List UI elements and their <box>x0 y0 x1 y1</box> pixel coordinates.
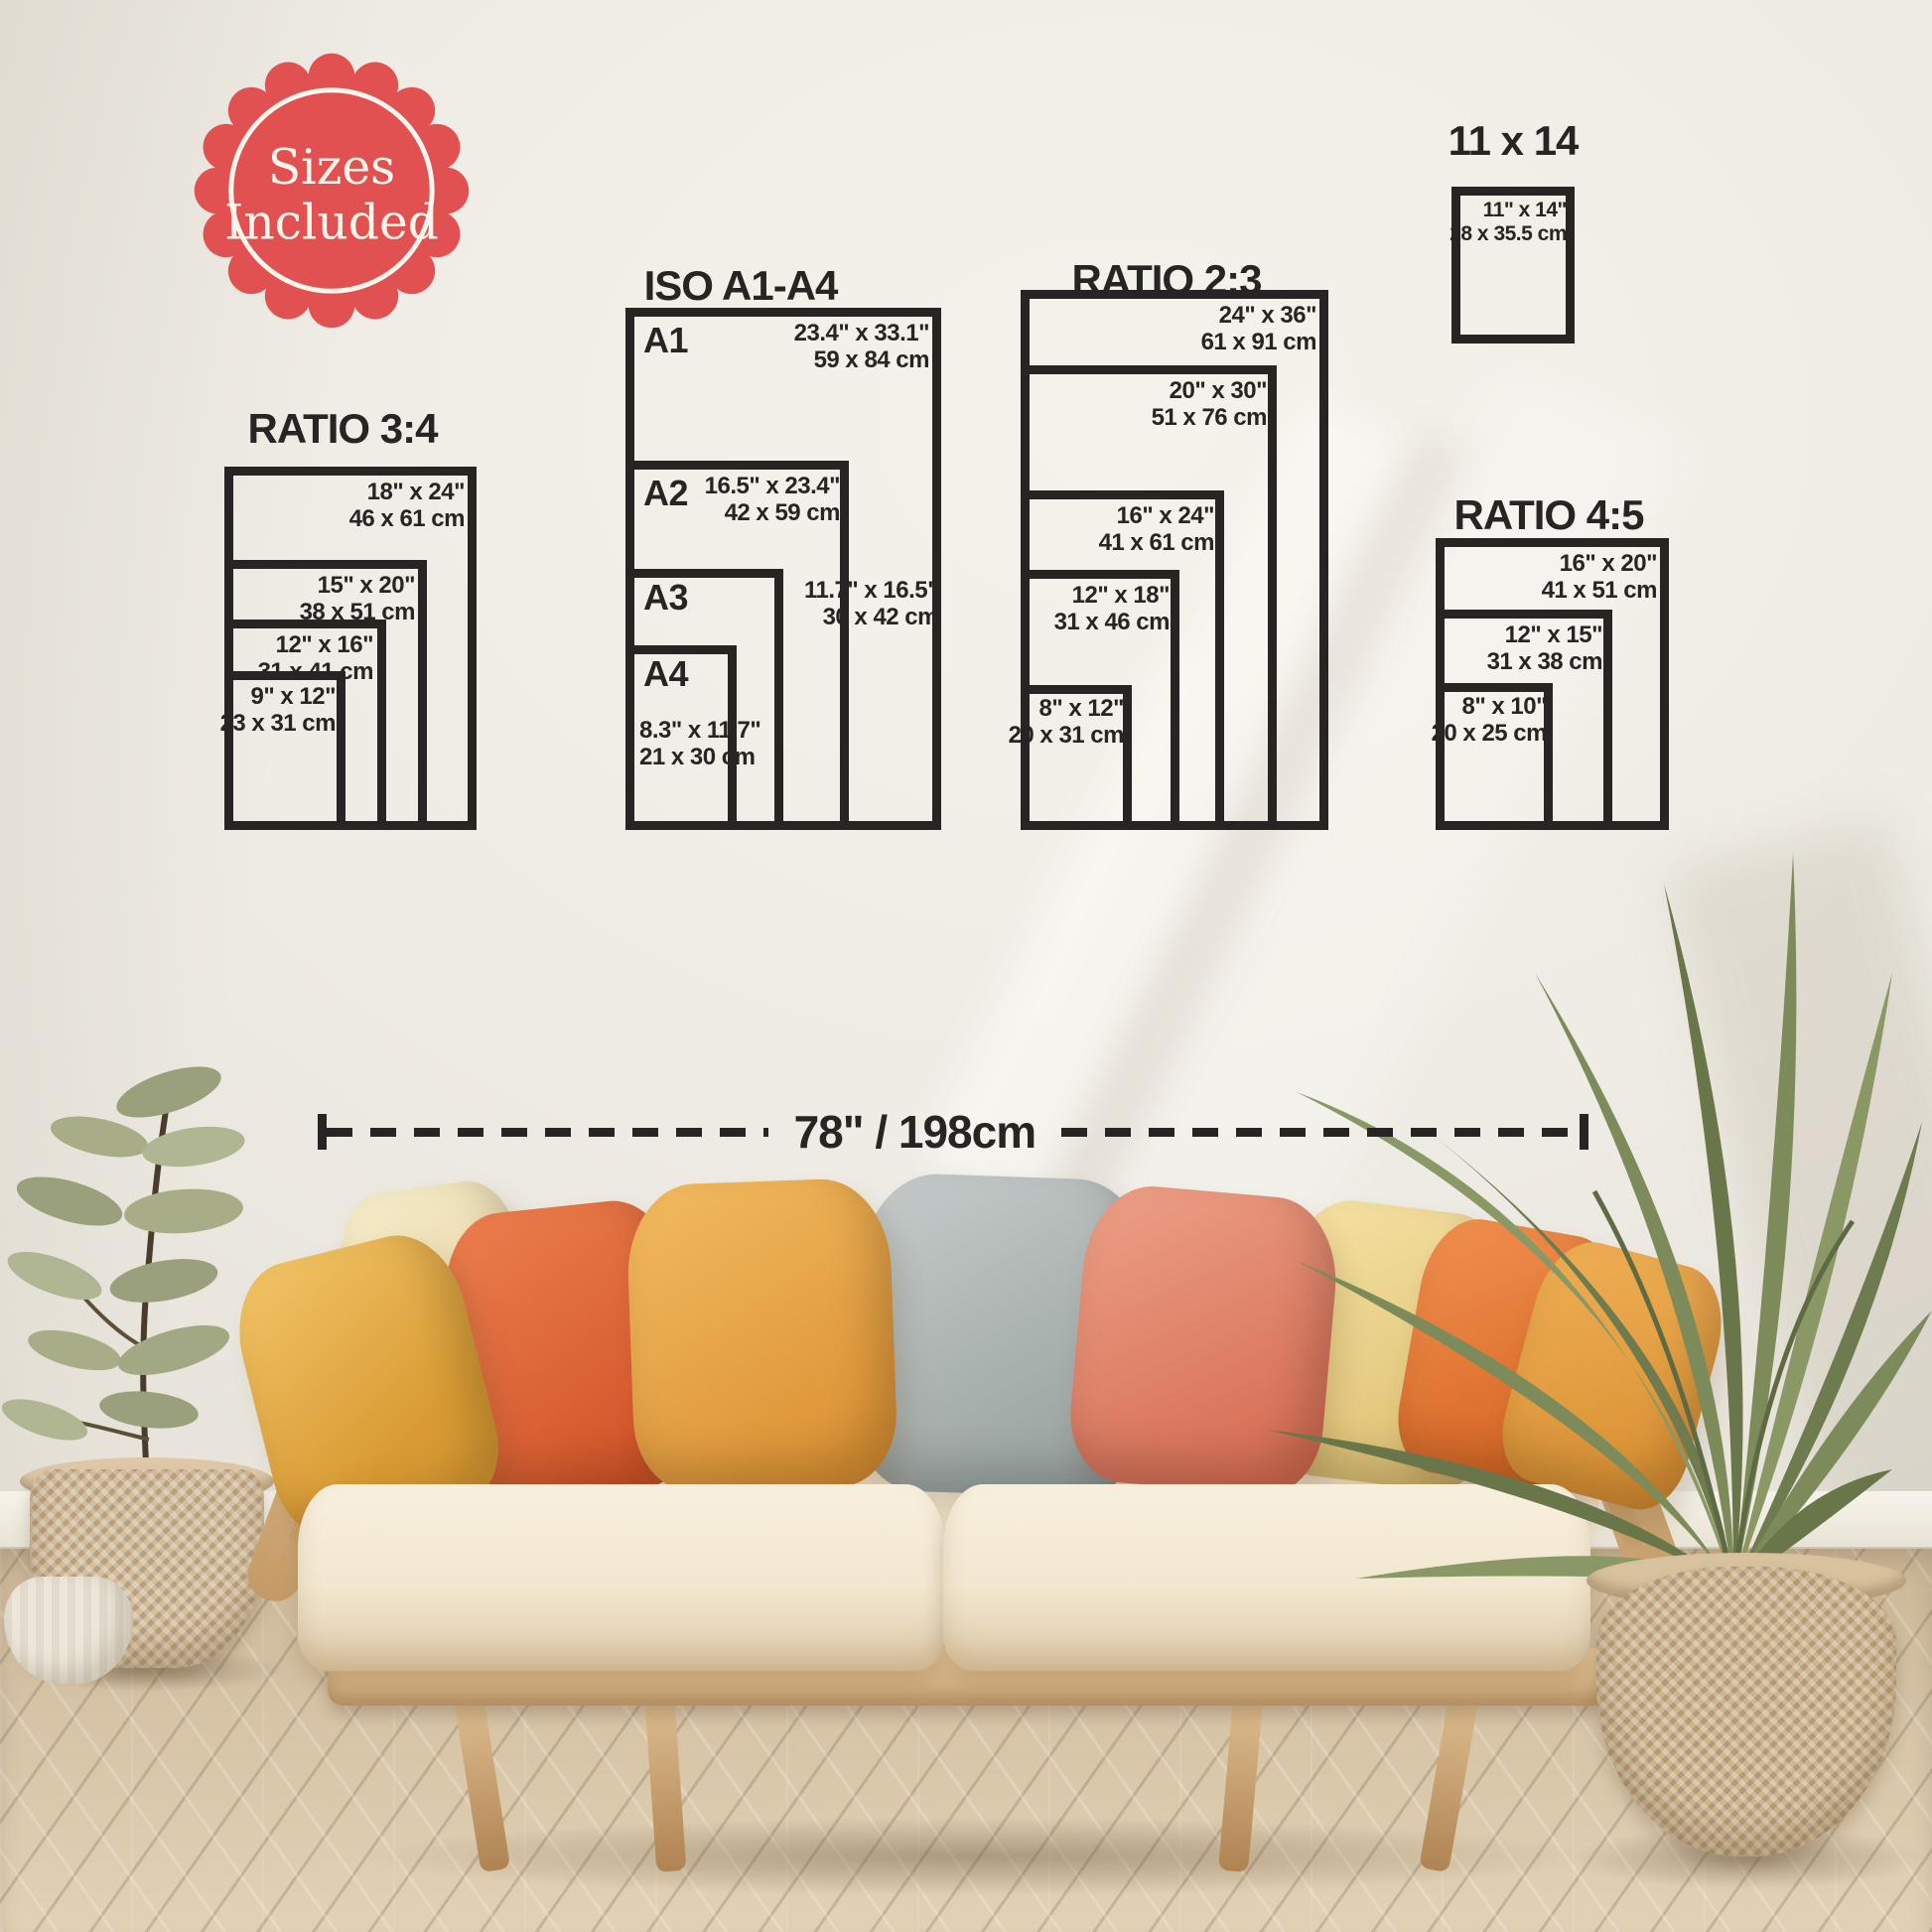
cm-text: 31 x 46 cm <box>1054 609 1170 635</box>
inch-text: 16.5" x 23.4" <box>705 473 840 499</box>
inch-text: 23.4" x 33.1" <box>794 320 929 346</box>
paper-label-a1: A1 <box>643 320 688 361</box>
size-chart-mockup: RATIO 3:4 18" x 24"46 x 61 cm 15" x 20"3… <box>0 0 1932 1932</box>
inch-text: 16" x 24" <box>1099 502 1214 529</box>
cm-text: 20 x 25 cm <box>1432 720 1547 747</box>
size-label-11x14: 11" x 14"28 x 35.5 cm <box>1449 199 1567 246</box>
inch-text: 8.3" x 11.7" <box>639 717 760 744</box>
cm-text: 38 x 51 cm <box>300 599 415 625</box>
badge-text-line2: Included <box>224 196 439 251</box>
cm-text: 42 x 59 cm <box>705 499 840 526</box>
size-label-12x15: 12" x 15"31 x 38 cm <box>1487 621 1602 676</box>
paper-label-a2: A2 <box>643 473 688 514</box>
cm-text: 20 x 31 cm <box>1009 722 1124 749</box>
measure-label: 78" / 198cm <box>794 1105 1036 1159</box>
measure-dash-left <box>327 1128 768 1137</box>
cm-text: 41 x 61 cm <box>1099 529 1214 556</box>
inch-text: 18" x 24" <box>349 479 465 505</box>
inch-text: 11" x 14" <box>1449 199 1567 222</box>
sizes-included-badge: Sizes Included <box>187 46 477 336</box>
paper-label-a3: A3 <box>643 577 688 619</box>
size-label-12x16: 12" x 16"31 x 41 cm <box>258 631 373 686</box>
inch-text: 11.7" x 16.5" <box>804 577 938 604</box>
cm-text: 31 x 41 cm <box>258 658 373 685</box>
measure-dash-right <box>1061 1128 1580 1137</box>
inch-text: 24" x 36" <box>1201 302 1316 329</box>
size-label-18x24: 18" x 24"46 x 61 cm <box>349 479 465 533</box>
inch-text: 9" x 12" <box>220 683 336 710</box>
measure-tick-right <box>1580 1114 1588 1150</box>
cm-text: 46 x 61 cm <box>349 505 465 532</box>
size-label-a4: 8.3" x 11.7"21 x 30 cm <box>639 717 760 771</box>
size-label-a1: 23.4" x 33.1"59 x 84 cm <box>794 320 929 374</box>
size-label-a3: 11.7" x 16.5"30 x 42 cm <box>804 577 938 631</box>
size-label-a2: 16.5" x 23.4"42 x 59 cm <box>705 473 840 527</box>
size-label-15x20: 15" x 20"38 x 51 cm <box>300 572 415 626</box>
size-label-8x12: 8" x 12"20 x 31 cm <box>1009 695 1124 750</box>
cm-text: 31 x 38 cm <box>1487 648 1602 675</box>
inch-text: 12" x 18" <box>1054 582 1170 609</box>
group-title-11x14: 11 x 14 <box>1314 117 1712 165</box>
cm-text: 30 x 42 cm <box>804 604 938 630</box>
cm-text: 28 x 35.5 cm <box>1449 222 1567 246</box>
paper-label-a4: A4 <box>643 653 688 695</box>
size-label-9x12: 9" x 12"23 x 31 cm <box>220 683 336 738</box>
measure-tick-left <box>318 1114 327 1150</box>
size-label-16x24: 16" x 24"41 x 61 cm <box>1099 502 1214 557</box>
cm-text: 41 x 51 cm <box>1542 577 1657 604</box>
inch-text: 12" x 16" <box>258 631 373 658</box>
size-label-8x10: 8" x 10"20 x 25 cm <box>1432 693 1547 748</box>
inch-text: 8" x 12" <box>1009 695 1124 722</box>
width-measurement: 78" / 198cm <box>318 1100 1588 1164</box>
inch-text: 20" x 30" <box>1152 377 1267 404</box>
cm-text: 61 x 91 cm <box>1201 329 1316 355</box>
badge-text-line1: Sizes <box>268 140 395 196</box>
inch-text: 16" x 20" <box>1542 550 1657 577</box>
group-title-ratio-3-4: RATIO 3:4 <box>144 405 541 453</box>
size-label-24x36: 24" x 36"61 x 91 cm <box>1201 302 1316 356</box>
cm-text: 51 x 76 cm <box>1152 404 1267 431</box>
size-label-12x18: 12" x 18"31 x 46 cm <box>1054 582 1170 636</box>
size-label-16x20: 16" x 20"41 x 51 cm <box>1542 550 1657 605</box>
inch-text: 15" x 20" <box>300 572 415 599</box>
cm-text: 21 x 30 cm <box>639 744 760 770</box>
cm-text: 59 x 84 cm <box>794 346 929 373</box>
group-title-ratio-4-5: RATIO 4:5 <box>1350 491 1747 539</box>
group-title-iso-a1-a4: ISO A1-A4 <box>542 262 939 310</box>
inch-text: 12" x 15" <box>1487 621 1602 648</box>
size-label-20x30: 20" x 30"51 x 76 cm <box>1152 377 1267 432</box>
cm-text: 23 x 31 cm <box>220 710 336 737</box>
inch-text: 8" x 10" <box>1432 693 1547 720</box>
